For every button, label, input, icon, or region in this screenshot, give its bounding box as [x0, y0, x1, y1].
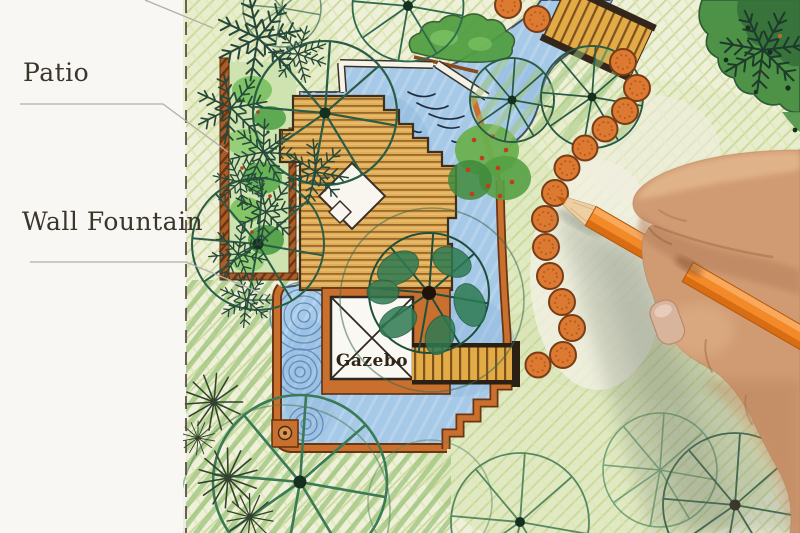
- label-wall-fountain: Wall Fountain: [22, 207, 203, 236]
- fountain-pump: [272, 420, 298, 447]
- plan-drawing: Gazebo: [0, 0, 800, 533]
- label-gazebo: Gazebo: [336, 351, 408, 371]
- photo-landscape-plan: Gazebo: [0, 0, 800, 533]
- label-patio: Patio: [23, 58, 89, 87]
